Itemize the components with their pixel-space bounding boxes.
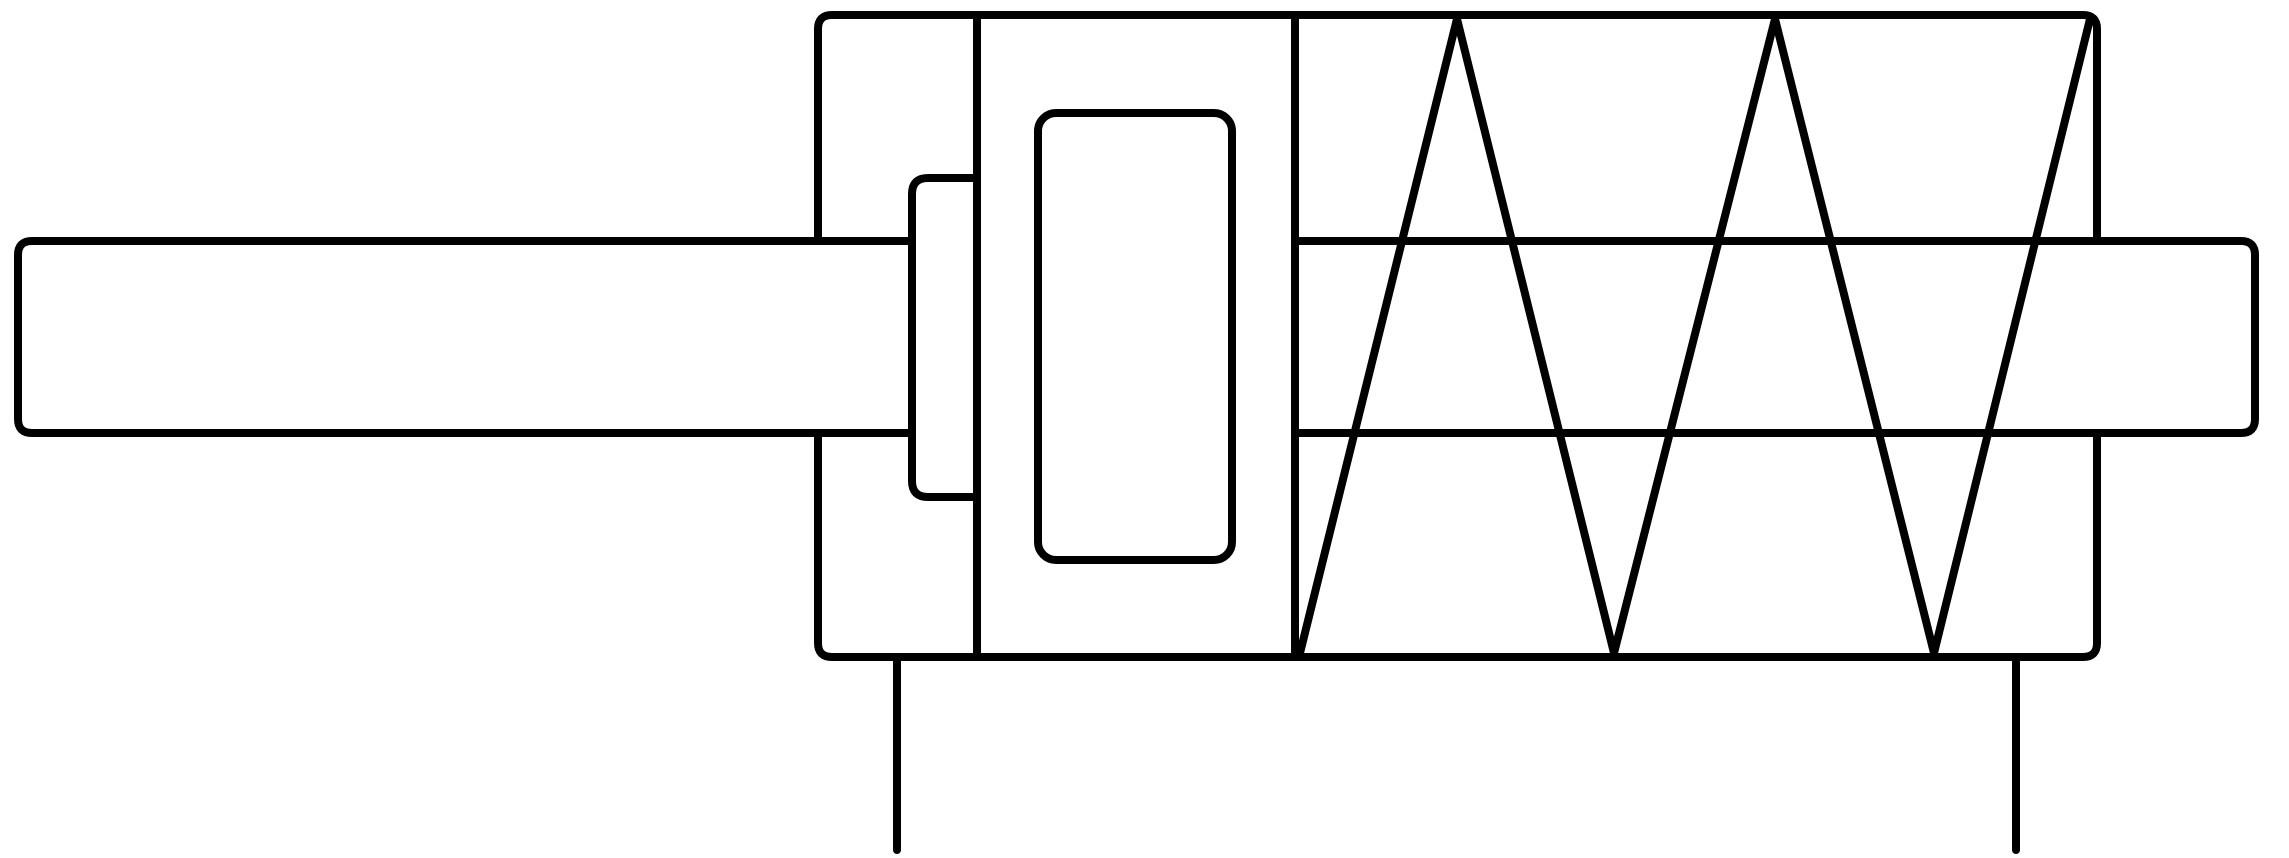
return-spring [1300, 19, 2090, 653]
piston-rod-left-segment [18, 241, 912, 433]
rod-side-flange [912, 178, 977, 497]
cushion-spool [1038, 113, 1232, 560]
piston-rod-right-segment [1295, 241, 2255, 433]
diagram-canvas [0, 0, 2289, 858]
cylinder-body-upper-outline [818, 15, 2097, 241]
pneumatic-cylinder-diagram [0, 0, 2289, 858]
diagram-linework [18, 15, 2255, 850]
